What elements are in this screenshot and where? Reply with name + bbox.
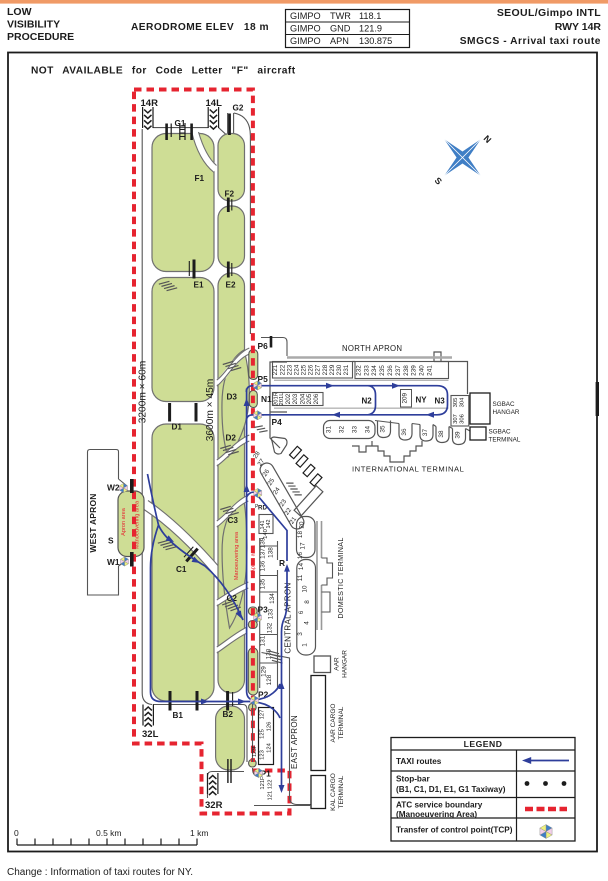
svg-text:SGBAC: SGBAC [493,401,515,408]
svg-text:16: 16 [297,552,304,560]
svg-text:123: 123 [260,750,266,760]
svg-text:N1: N1 [261,394,272,404]
svg-text:P4: P4 [272,417,283,427]
svg-text:G2: G2 [233,104,244,113]
svg-text:124: 124 [267,742,273,752]
svg-text:AERODROME ELEV 18 m: AERODROME ELEV 18 m [131,22,269,33]
svg-text:G1: G1 [175,119,186,128]
svg-text:WEST APRON: WEST APRON [88,493,98,552]
svg-text:TERMINAL: TERMINAL [489,437,521,444]
svg-text:LEGEND: LEGEND [464,739,503,749]
svg-text:14R: 14R [141,98,159,109]
svg-text:136: 136 [260,560,267,571]
svg-text:18: 18 [297,531,304,539]
svg-text:202: 202 [285,393,292,404]
svg-text:236: 236 [387,365,394,376]
svg-text:S: S [108,536,114,546]
svg-text:D3: D3 [227,393,238,402]
svg-text:232: 232 [355,365,362,376]
svg-text:D2: D2 [226,434,237,443]
svg-text:304: 304 [460,397,466,407]
svg-text:33: 33 [352,426,359,434]
svg-text:SEOUL/Gimpo INTL: SEOUL/Gimpo INTL [497,7,601,19]
svg-text:Manoeuvering area: Manoeuvering area [135,500,141,549]
svg-text:14L: 14L [206,98,223,109]
svg-text:233: 233 [363,365,370,376]
svg-text:NOT AVAILABLE for Code Letter: NOT AVAILABLE for Code Letter "F" aircra… [31,66,296,77]
svg-text:226: 226 [308,364,315,375]
svg-text:140: 140 [263,529,269,539]
svg-text:P3: P3 [258,605,269,615]
svg-text:209: 209 [401,392,408,403]
svg-text:141: 141 [260,521,266,530]
svg-text:DOMESTIC TERMINAL: DOMESTIC TERMINAL [336,537,345,618]
svg-text:222: 222 [279,364,286,375]
svg-text:32L: 32L [142,729,159,740]
svg-text:125: 125 [260,729,266,739]
svg-text:E1: E1 [194,281,204,290]
svg-text:203: 203 [292,393,299,404]
svg-text:4: 4 [304,621,311,625]
svg-text:N2: N2 [362,397,373,406]
svg-text:127: 127 [260,710,266,720]
svg-text:35: 35 [380,425,387,433]
svg-text:TWR: TWR [330,11,351,21]
svg-text:1: 1 [302,643,309,647]
svg-text:228: 228 [322,364,329,375]
svg-text:INTERNATIONAL TERMINAL: INTERNATIONAL TERMINAL [352,465,464,474]
svg-text:225: 225 [301,364,308,375]
svg-text:0.5 km: 0.5 km [96,828,122,838]
svg-text:Transfer of control point(TCP): Transfer of control point(TCP) [396,826,513,835]
svg-text:10: 10 [302,585,309,593]
svg-text:P6: P6 [258,341,269,351]
svg-text:38: 38 [438,430,445,438]
svg-text:32: 32 [339,426,346,434]
svg-text:E2: E2 [226,281,236,290]
svg-text:307: 307 [453,414,459,424]
svg-text:3200m × 60m: 3200m × 60m [138,361,149,424]
svg-text:142: 142 [266,520,272,529]
svg-text:TERMINAL: TERMINAL [338,775,345,808]
svg-text:APN: APN [330,36,349,46]
svg-text:GIMPO: GIMPO [290,24,321,34]
svg-text:237: 237 [395,365,402,376]
svg-text:130.875: 130.875 [359,36,392,46]
svg-text:239: 239 [411,365,418,376]
svg-text:Stop-bar: Stop-bar [396,775,430,784]
svg-text:W2: W2 [107,483,120,493]
svg-text:F2: F2 [225,190,235,199]
svg-text:138: 138 [268,547,275,558]
svg-text:NY: NY [416,396,428,405]
svg-text:223: 223 [286,364,293,375]
svg-text:34: 34 [365,426,372,434]
svg-text:241: 241 [427,365,434,376]
svg-text:PROCEDURE: PROCEDURE [7,31,74,43]
svg-text:R: R [279,558,285,568]
svg-text:Apron area: Apron area [251,544,257,573]
svg-text:W1: W1 [107,557,120,567]
svg-text:135: 135 [260,578,267,589]
svg-text:F1: F1 [195,174,205,183]
svg-text:TAXI routes: TAXI routes [396,757,442,766]
svg-text:N3: N3 [435,397,446,406]
svg-text:(B1, C1, D1, E1, G1 Taxiway): (B1, C1, D1, E1, G1 Taxiway) [396,785,506,794]
svg-text:118.1: 118.1 [359,11,381,21]
svg-text:132: 132 [267,622,274,633]
svg-text:VISIBILITY: VISIBILITY [7,19,60,31]
svg-text:31: 31 [326,426,333,434]
svg-text:235: 235 [379,365,386,376]
svg-text:GND: GND [330,24,351,34]
svg-text:240: 240 [419,365,426,376]
svg-text:AAR: AAR [334,657,341,671]
svg-text:139: 139 [260,537,267,548]
svg-text:224: 224 [293,364,300,375]
svg-text:121.9: 121.9 [359,24,382,34]
svg-text:221: 221 [272,364,279,375]
svg-text:8: 8 [304,600,311,604]
svg-text:C3: C3 [228,516,239,525]
svg-text:229: 229 [329,364,336,375]
svg-text:NORTH APRON: NORTH APRON [342,344,402,353]
svg-text:134: 134 [269,593,276,604]
svg-text:Apron area: Apron area [121,507,127,536]
svg-text:227: 227 [315,364,322,375]
svg-text:133: 133 [268,608,275,619]
svg-text:HANGAR: HANGAR [493,409,520,416]
svg-text:36: 36 [401,428,408,436]
svg-text:11: 11 [297,574,304,581]
svg-text:6: 6 [298,610,305,614]
svg-text:20: 20 [299,521,306,529]
svg-text:37: 37 [422,429,429,437]
svg-text:C1: C1 [176,565,187,574]
svg-text:14: 14 [298,563,305,571]
svg-text:3: 3 [297,632,304,636]
svg-text:128: 128 [266,674,273,685]
svg-text:1 km: 1 km [190,828,208,838]
svg-text:137: 137 [260,548,267,559]
svg-text:206: 206 [313,393,320,404]
svg-text:Manoeuvering area: Manoeuvering area [234,531,240,580]
svg-text:238: 238 [403,365,410,376]
svg-text:D1: D1 [172,423,183,432]
svg-text:123F: 123F [252,745,258,757]
svg-text:HANGAR: HANGAR [342,650,349,678]
svg-text:SMGCS - Arrival taxi route: SMGCS - Arrival taxi route [460,36,601,47]
svg-text:SGBAC: SGBAC [489,429,511,436]
svg-text:32R: 32R [205,800,223,811]
svg-text:GIMPO: GIMPO [290,36,321,46]
svg-text:RWY 14R: RWY 14R [555,21,602,33]
svg-text:231: 231 [343,364,350,375]
svg-text:S: S [433,175,444,186]
svg-text:305: 305 [453,398,459,408]
svg-text:0: 0 [14,828,19,838]
svg-text:234: 234 [371,365,378,376]
svg-text:131: 131 [260,635,267,646]
svg-text:306: 306 [460,414,466,424]
svg-text:TERMINAL: TERMINAL [338,706,345,739]
svg-text:ATC service boundary: ATC service boundary [396,801,483,810]
svg-text:AAR CARGO: AAR CARGO [330,703,337,742]
svg-text:230: 230 [336,364,343,375]
svg-text:B2: B2 [223,710,234,719]
svg-text:39: 39 [455,431,462,439]
svg-text:N: N [482,133,494,145]
svg-text:(Manoeuvering Area): (Manoeuvering Area) [396,810,477,819]
svg-text:LOW: LOW [7,6,32,18]
svg-text:GIMPO: GIMPO [290,11,321,21]
svg-text:EAST APRON: EAST APRON [290,715,299,769]
svg-text:3600m × 45m: 3600m × 45m [205,379,216,442]
svg-text:126: 126 [267,722,273,732]
svg-text:17: 17 [300,542,307,550]
svg-text:KAL CARGO: KAL CARGO [330,773,337,811]
svg-text:B1: B1 [173,711,184,720]
svg-text:121 122: 121 122 [268,780,274,801]
